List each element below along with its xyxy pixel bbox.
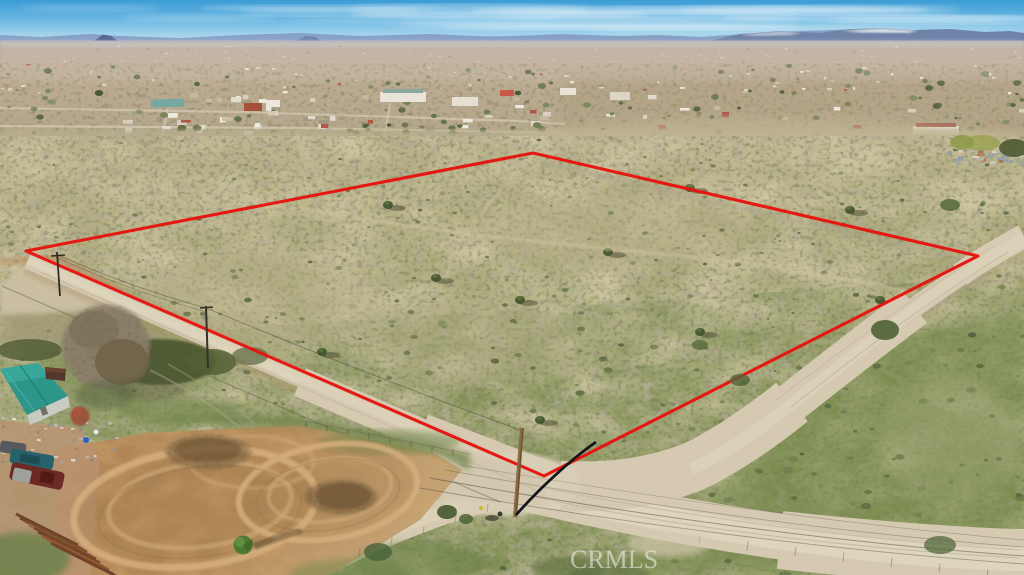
svg-text:CRMLS: CRMLS (570, 545, 658, 574)
